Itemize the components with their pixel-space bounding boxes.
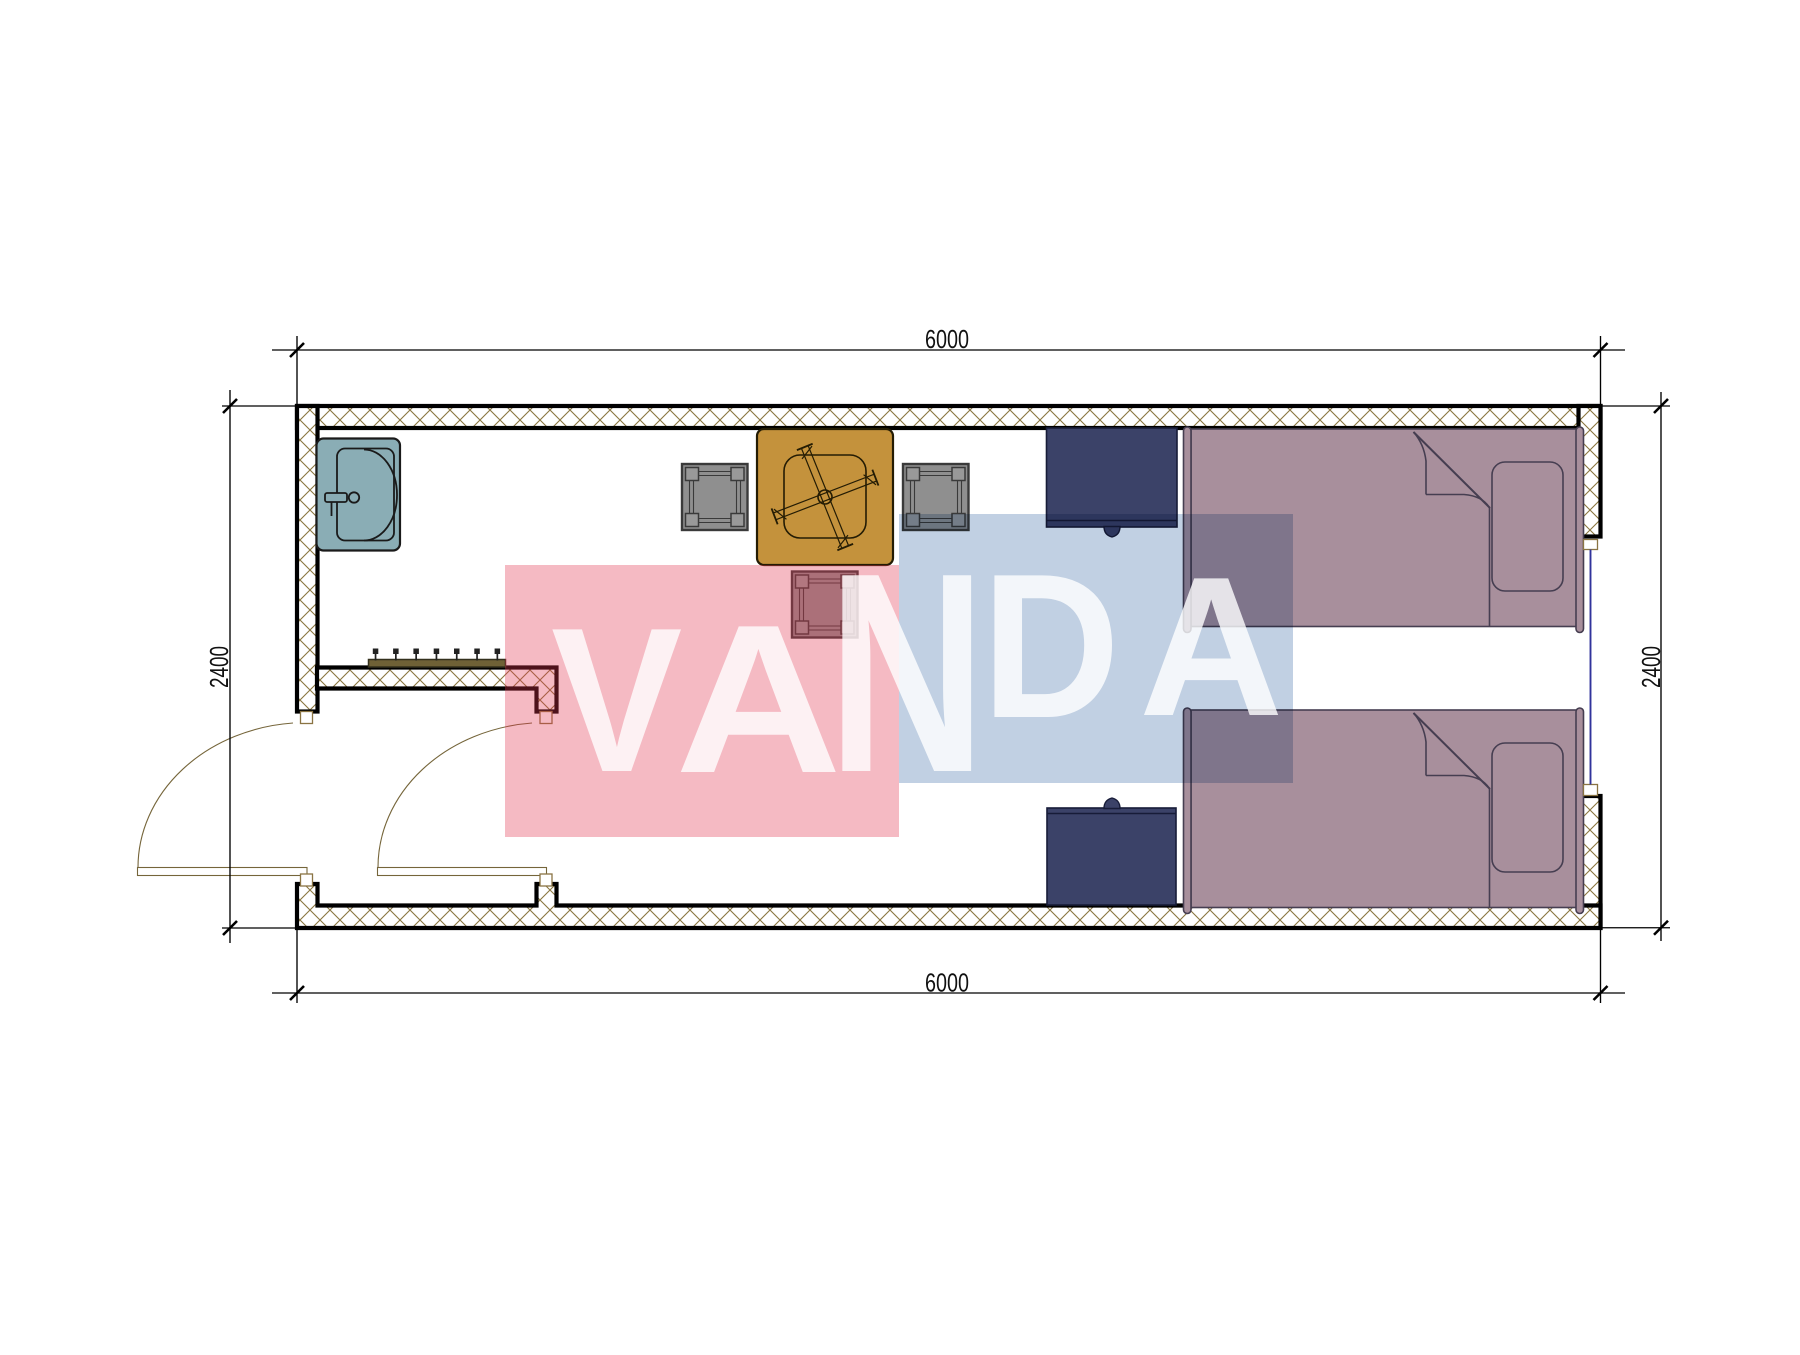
svg-text:2400: 2400 <box>1636 646 1666 688</box>
svg-text:A: A <box>1139 537 1283 758</box>
svg-text:6000: 6000 <box>925 968 969 998</box>
svg-text:2400: 2400 <box>204 646 234 688</box>
svg-text:N: N <box>828 513 986 831</box>
svg-text:V: V <box>551 585 682 815</box>
svg-text:D: D <box>982 532 1120 762</box>
svg-text:6000: 6000 <box>925 324 969 354</box>
svg-text:A: A <box>675 581 842 817</box>
